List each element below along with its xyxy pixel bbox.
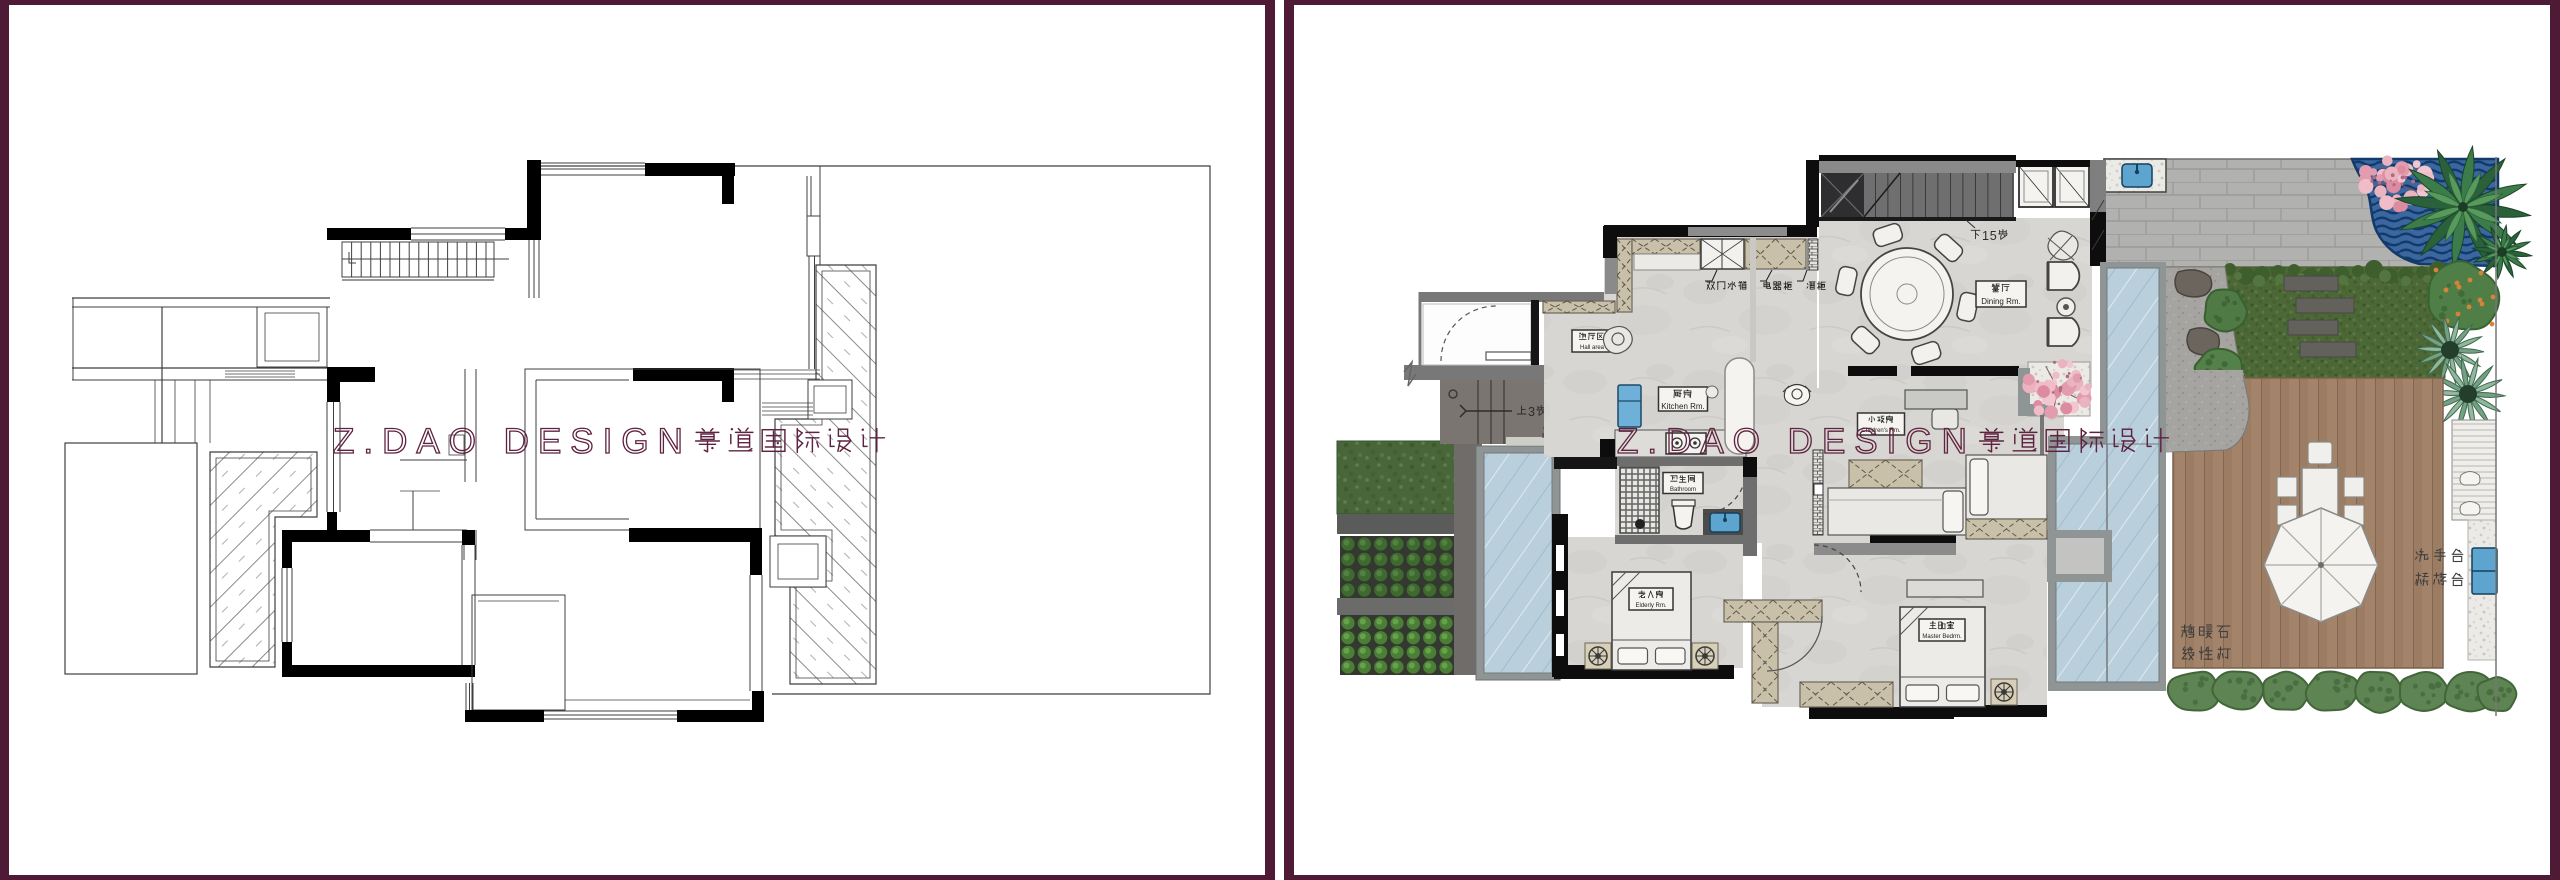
svg-text:1: 1 — [1982, 229, 1989, 243]
svg-text:5: 5 — [1990, 229, 1997, 243]
svg-text:Bathroom: Bathroom — [1670, 487, 1696, 493]
svg-text:Dining Rm.: Dining Rm. — [1981, 297, 2021, 306]
svg-text:Elderly Rm.: Elderly Rm. — [1635, 603, 1666, 609]
svg-text:Master Bedrm.: Master Bedrm. — [1922, 634, 1962, 640]
svg-text:Z.DAO DESIGN: Z.DAO DESIGN — [1617, 422, 1976, 461]
svg-text:Z.DAO DESIGN: Z.DAO DESIGN — [333, 422, 692, 461]
svg-text:3: 3 — [1528, 405, 1535, 419]
svg-text:Hall area: Hall area — [1580, 345, 1605, 351]
svg-text:Kitchen Rm.: Kitchen Rm. — [1661, 402, 1705, 411]
